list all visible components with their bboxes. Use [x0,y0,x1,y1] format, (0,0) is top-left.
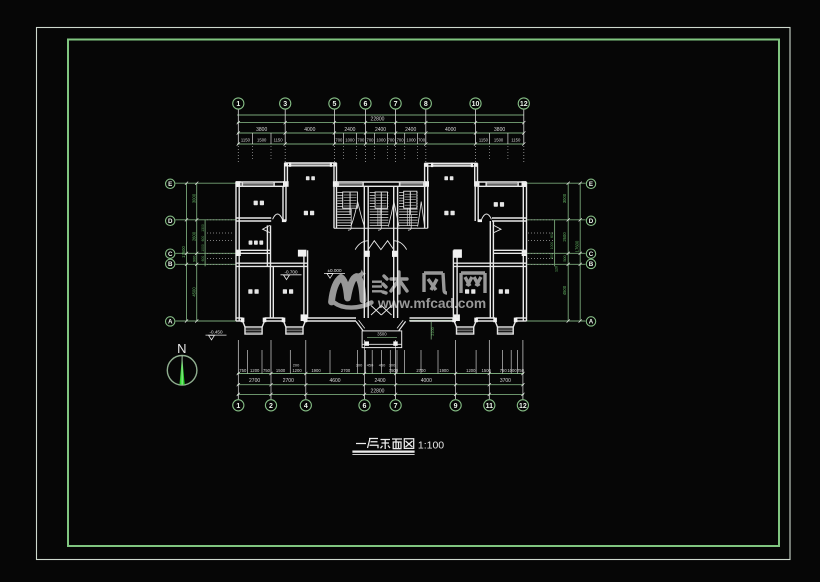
svg-text:450: 450 [379,363,386,368]
svg-text:17600: 17600 [575,240,580,252]
svg-text:1150: 1150 [511,137,521,142]
svg-text:2400: 2400 [405,127,416,133]
svg-text:A: A [168,319,173,326]
svg-text:1150: 1150 [241,137,251,142]
svg-text:1:100: 1:100 [418,440,444,452]
svg-text:1300: 1300 [201,224,205,232]
svg-text:10: 10 [472,101,480,108]
svg-text:3800: 3800 [256,127,267,133]
svg-text:2700: 2700 [341,368,351,373]
svg-text:600: 600 [201,256,205,262]
svg-text:600: 600 [201,236,205,242]
svg-text:600: 600 [550,232,554,238]
svg-text:700: 700 [335,137,343,142]
svg-text:1500: 1500 [276,368,286,373]
svg-text:7: 7 [394,101,398,108]
svg-text:9: 9 [454,403,458,410]
svg-text:2700: 2700 [249,378,260,384]
svg-text:1200: 1200 [292,368,302,373]
svg-text:E: E [168,181,172,188]
svg-text:22800: 22800 [371,116,385,122]
svg-text:1: 1 [236,403,240,410]
svg-text:12: 12 [519,403,527,410]
svg-text:3500: 3500 [377,331,387,336]
svg-text:2700: 2700 [283,378,294,384]
svg-text:300: 300 [389,363,396,368]
svg-text:1150: 1150 [479,137,489,142]
svg-text:2400: 2400 [344,127,355,133]
svg-text:C: C [168,251,173,258]
svg-text:17600: 17600 [181,246,186,258]
svg-text:3000: 3000 [191,193,196,203]
svg-text:6: 6 [363,403,367,410]
svg-text:1000: 1000 [550,242,554,250]
svg-text:±0.000: ±0.000 [327,268,341,273]
svg-text:2700: 2700 [416,368,426,373]
svg-text:6: 6 [364,101,368,108]
svg-text:4500: 4500 [562,285,567,295]
svg-text:1000: 1000 [376,137,386,142]
svg-text:120: 120 [555,266,559,272]
svg-text:2400: 2400 [374,378,385,384]
svg-text:E: E [589,181,593,188]
svg-text:2: 2 [269,403,273,410]
svg-text:4: 4 [304,403,308,410]
svg-text:700: 700 [388,137,396,142]
svg-text:1900: 1900 [311,368,321,373]
svg-text:D: D [589,218,594,225]
svg-text:2600: 2600 [191,231,196,241]
svg-text:3800: 3800 [494,127,505,133]
svg-text:2100: 2100 [431,327,435,335]
svg-text:750: 750 [517,368,525,373]
svg-text:D: D [168,218,173,225]
svg-text:A: A [589,319,594,326]
svg-text:4000: 4000 [445,127,456,133]
svg-text:1000: 1000 [201,244,205,252]
svg-text:500: 500 [563,255,567,261]
svg-text:N: N [177,341,186,356]
svg-text:1900: 1900 [439,368,449,373]
svg-text:900: 900 [192,256,196,262]
svg-text:1500: 1500 [257,137,267,142]
svg-text:1500: 1500 [482,368,492,373]
svg-text:200: 200 [293,363,300,368]
svg-text:7: 7 [394,403,398,410]
svg-text:3700: 3700 [500,378,511,384]
svg-text:4600: 4600 [329,378,340,384]
svg-text:1200: 1200 [250,368,260,373]
svg-text:4000: 4000 [421,378,432,384]
svg-text:300: 300 [356,363,363,368]
svg-text:B: B [168,261,173,268]
svg-text:1: 1 [236,101,240,108]
svg-text:3: 3 [283,101,287,108]
svg-text:11: 11 [486,403,494,410]
svg-text:1500: 1500 [494,137,504,142]
svg-text:750: 750 [239,368,247,373]
svg-text:750: 750 [500,368,508,373]
svg-text:1150: 1150 [274,137,284,142]
svg-text:4500: 4500 [191,287,196,297]
svg-text:4000: 4000 [304,127,315,133]
svg-text:1000: 1000 [345,137,355,142]
svg-text:8: 8 [424,101,428,108]
svg-text:-0.450: -0.450 [209,330,222,335]
svg-text:700: 700 [418,137,426,142]
svg-text:2400: 2400 [375,127,386,133]
svg-text:700: 700 [367,137,375,142]
svg-text:700: 700 [357,137,365,142]
svg-text:12: 12 [520,101,528,108]
svg-text:1000: 1000 [507,368,517,373]
svg-text:3000: 3000 [562,193,567,203]
svg-text:2600: 2600 [562,232,567,242]
svg-text:22800: 22800 [371,388,385,394]
svg-text:750: 750 [263,368,271,373]
svg-text:-0.700: -0.700 [284,269,297,274]
svg-text:5: 5 [332,101,336,108]
svg-text:1200: 1200 [466,368,476,373]
svg-text:B: B [589,261,594,268]
svg-text:C: C [589,251,594,258]
svg-text:450: 450 [367,363,374,368]
svg-text:600: 600 [550,253,554,259]
svg-text:700: 700 [397,137,405,142]
svg-text:1000: 1000 [406,137,416,142]
